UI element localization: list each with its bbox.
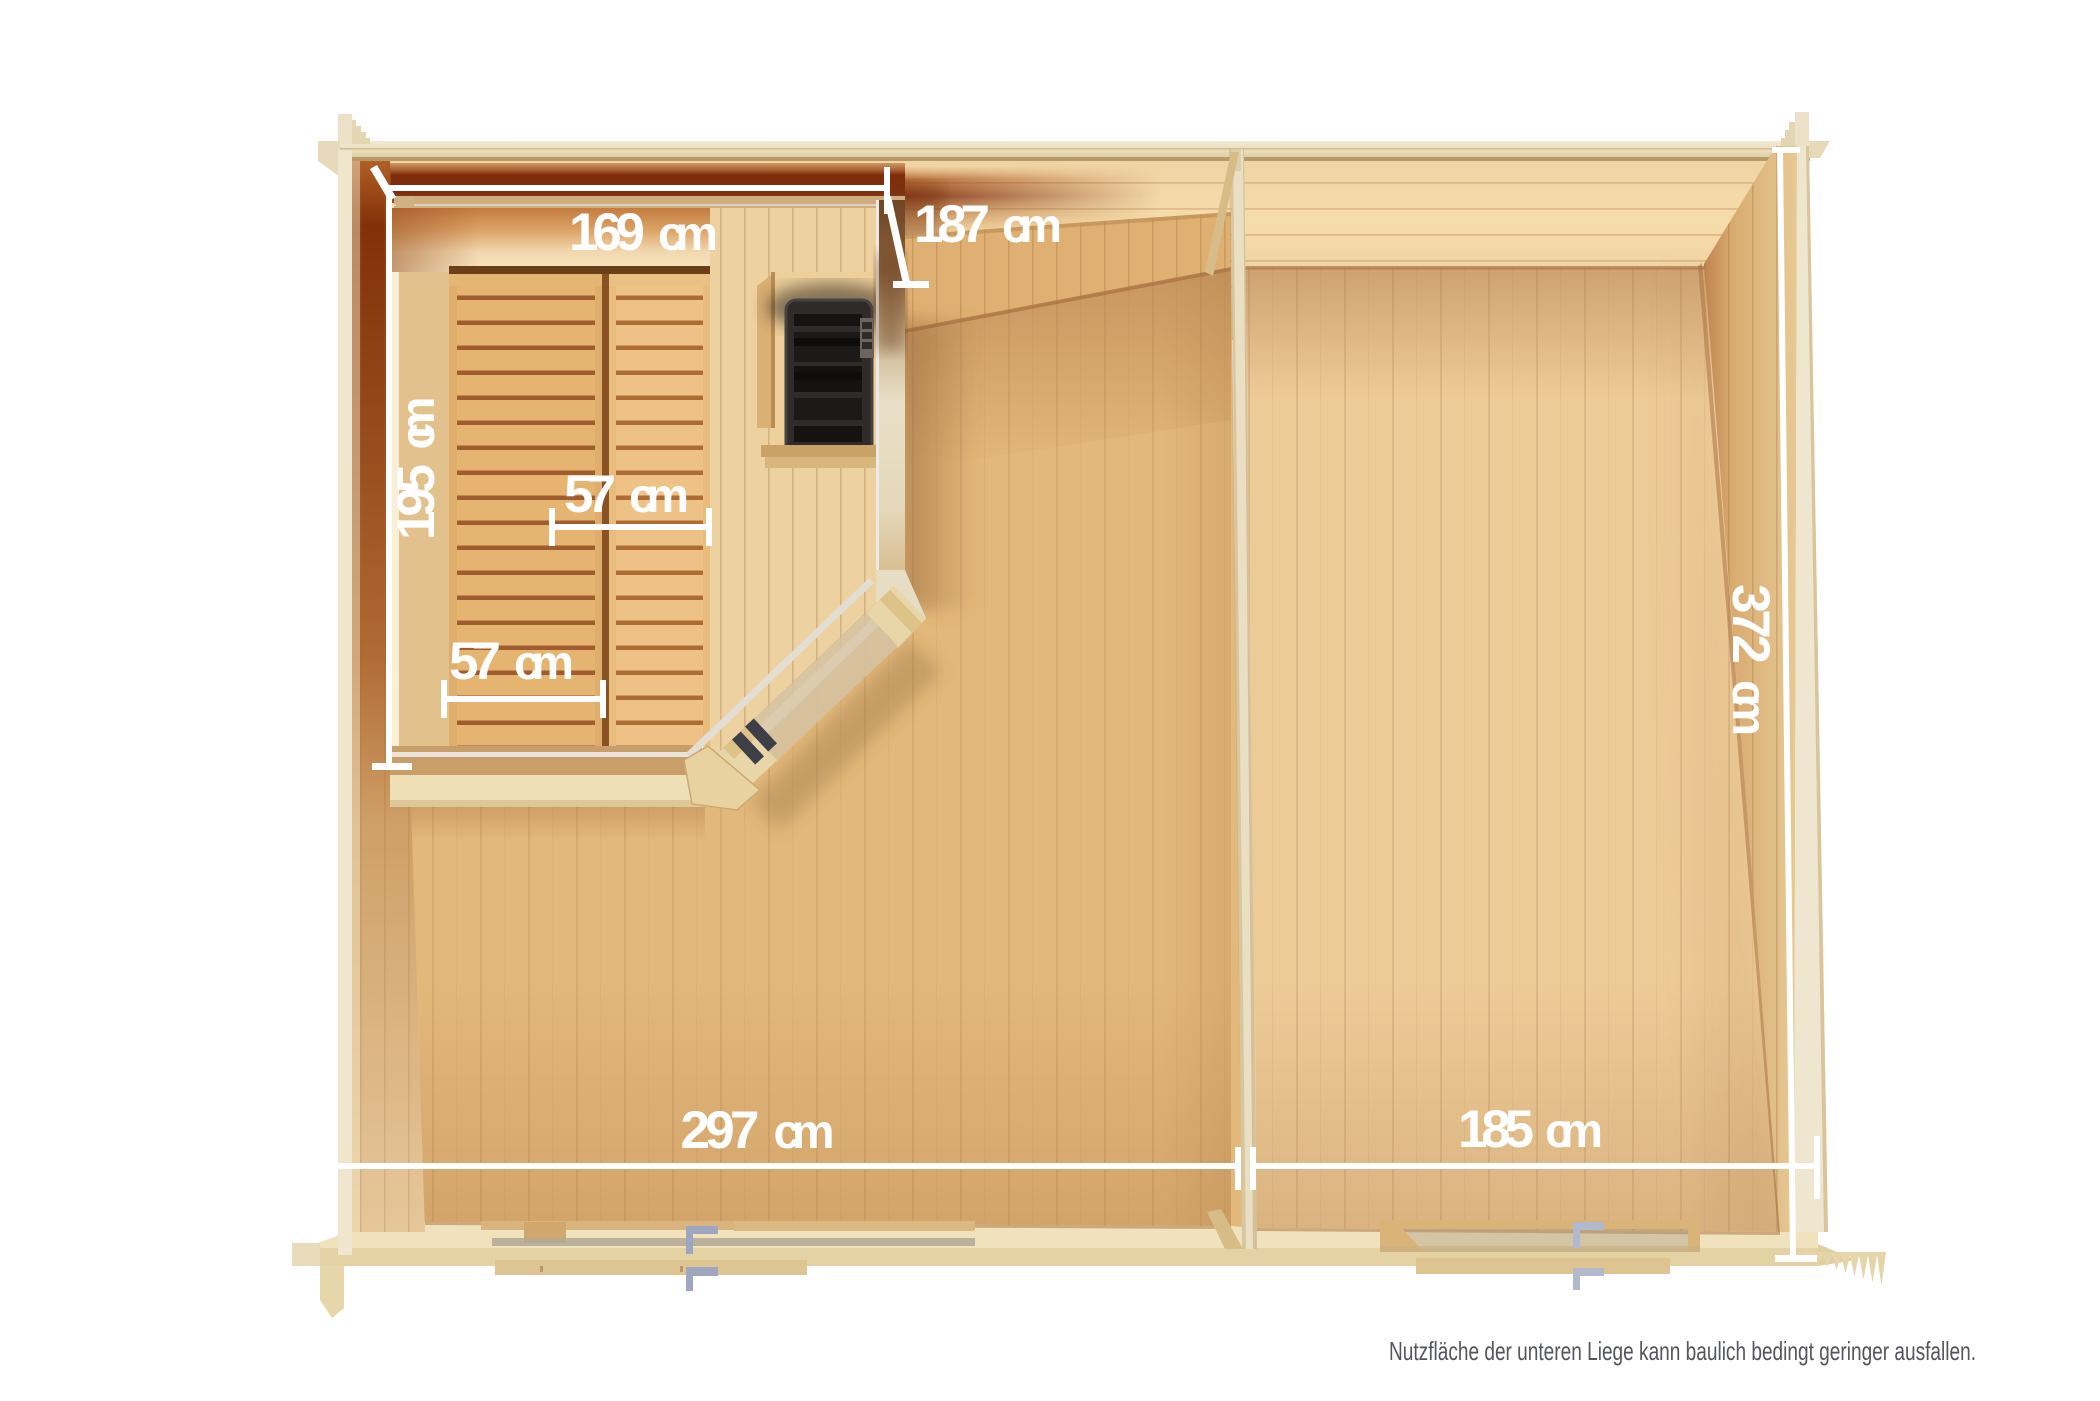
svg-text:195: 195 — [387, 464, 446, 540]
svg-text:cm: cm — [514, 637, 574, 690]
svg-text:297: 297 — [681, 1101, 760, 1160]
svg-text:57: 57 — [564, 465, 616, 524]
svg-text:57: 57 — [449, 632, 501, 691]
svg-text:187: 187 — [914, 195, 990, 254]
svg-text:169: 169 — [569, 203, 645, 262]
svg-text:cm: cm — [774, 1106, 835, 1159]
svg-text:cm: cm — [629, 470, 689, 523]
svg-text:Nutzfläche der unteren Liege k: Nutzfläche der unteren Liege kann baulic… — [1389, 1336, 1976, 1366]
svg-text:185: 185 — [1458, 1100, 1534, 1159]
svg-text:cm: cm — [392, 397, 445, 450]
svg-text:372: 372 — [1721, 584, 1780, 664]
svg-text:cm: cm — [1545, 1105, 1603, 1158]
svg-text:cm: cm — [1722, 680, 1775, 736]
svg-text:cm: cm — [658, 208, 718, 261]
svg-text:cm: cm — [1002, 200, 1062, 253]
